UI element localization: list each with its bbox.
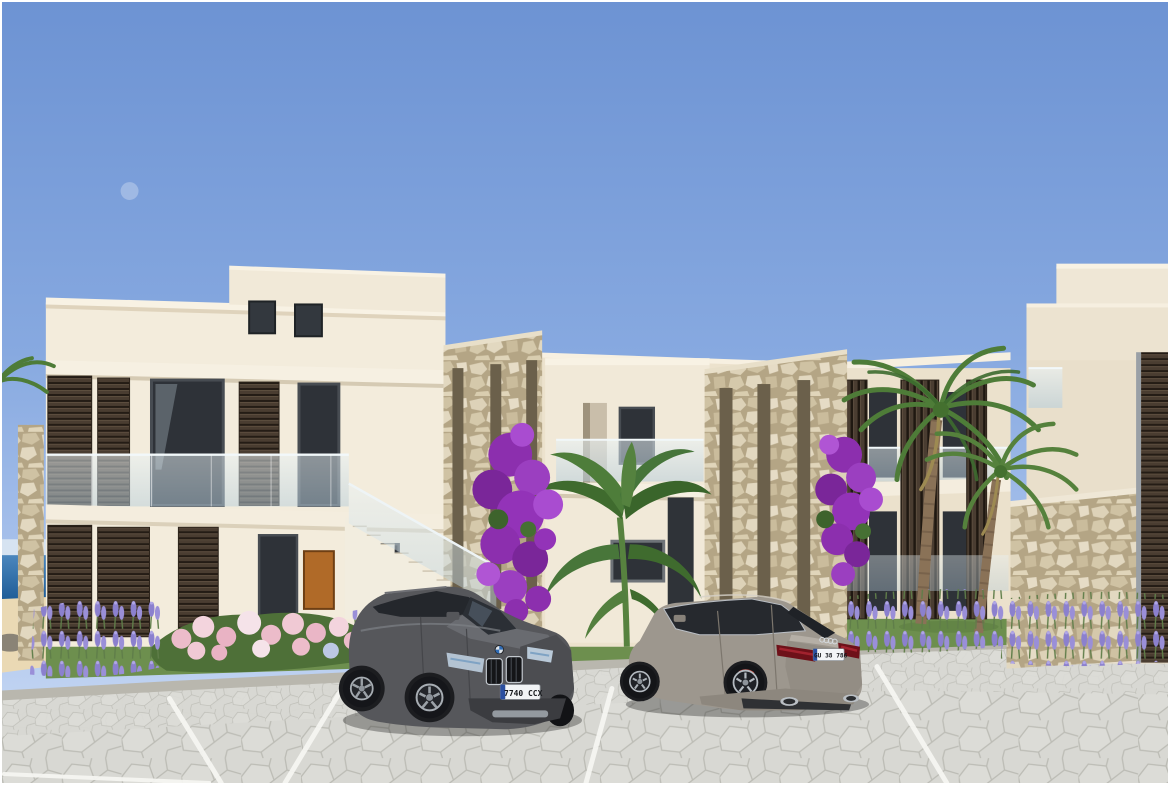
pillar-slot [720, 388, 733, 627]
suv-license-plate-text: 7740 CCX [504, 689, 543, 698]
lavender-far-right [1001, 592, 1168, 666]
suv-rear-wheel [343, 670, 381, 708]
penthouse-window [249, 301, 275, 333]
sedan-license-plate-text: GU 38 786 [814, 653, 848, 660]
penthouse-window [295, 304, 322, 336]
lavender-right [841, 589, 1010, 653]
balcony-balustrade [46, 455, 349, 507]
pillar-slot [797, 380, 810, 627]
sedan-license-plate: GU 38 786 [813, 649, 847, 661]
central-door [668, 497, 694, 606]
sedan-front-wheel [623, 665, 657, 699]
architectural-render: 7740 CCX [0, 0, 1170, 785]
moon [121, 182, 139, 200]
pillar-slot [757, 384, 770, 627]
suv-front-wheel [409, 677, 451, 719]
suv-roundel-badge [495, 646, 503, 654]
orange-entrance-door [304, 551, 334, 609]
roof-balustrade [1028, 368, 1062, 408]
lavender-left [30, 599, 164, 677]
suv-mirror [446, 612, 459, 620]
suv-skid-plate [492, 710, 548, 717]
render-canvas: 7740 CCX [2, 2, 1168, 783]
suv-license-plate: 7740 CCX [500, 685, 542, 700]
sedan-mirror [674, 615, 686, 622]
